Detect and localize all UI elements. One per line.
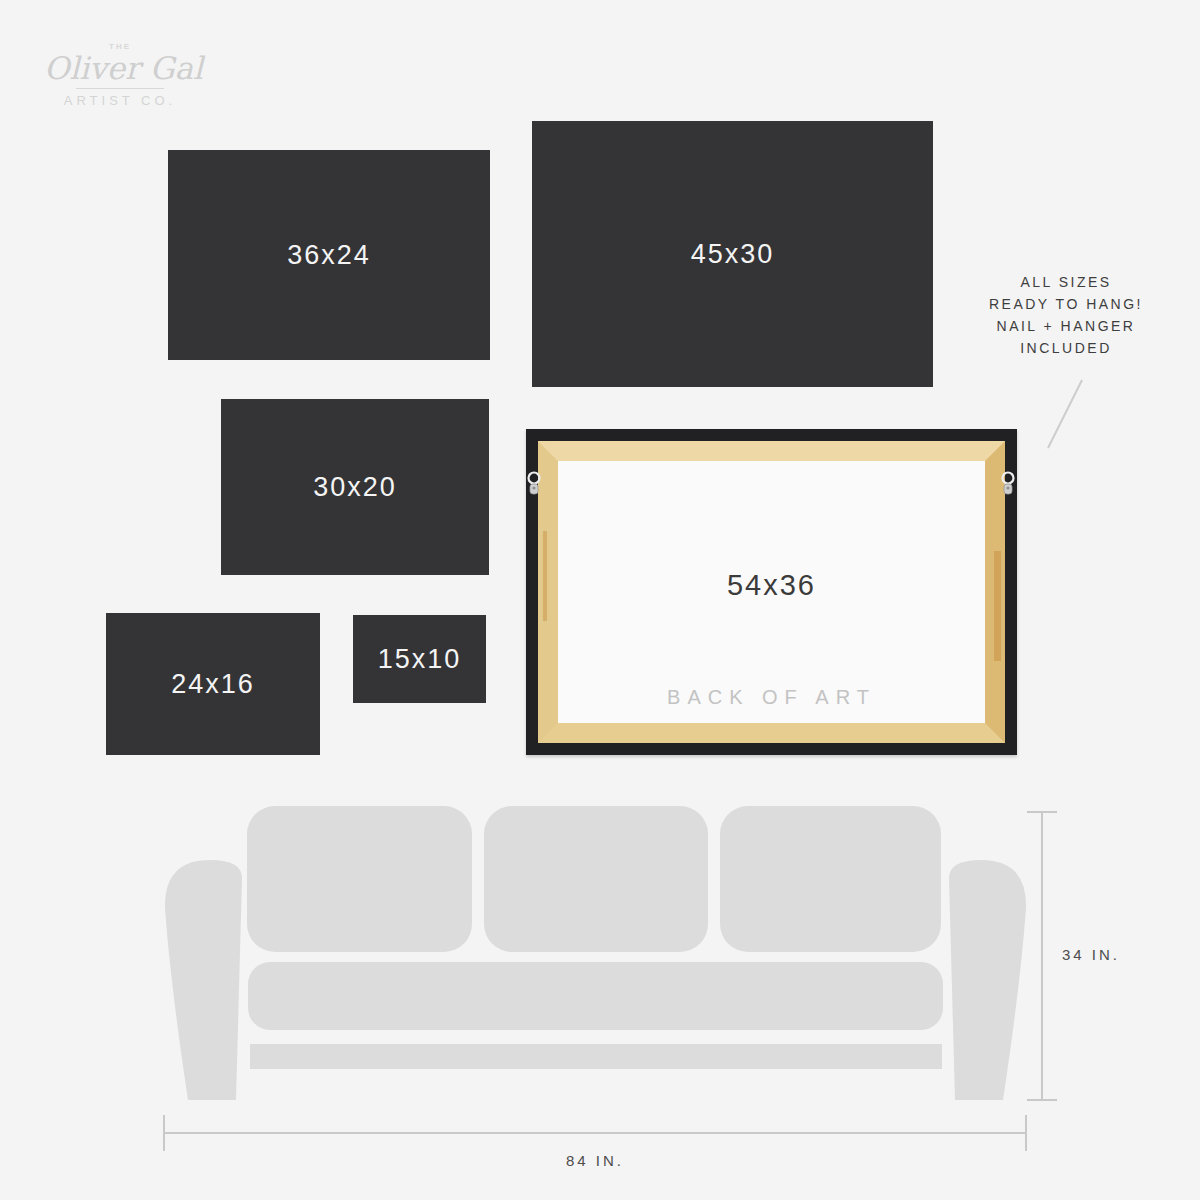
sofa-right-armrest — [949, 860, 1026, 1100]
back-of-art-frame: 54x36 BACK OF ART — [526, 429, 1017, 755]
ready-to-hang-note: ALL SIZES READY TO HANG! NAIL + HANGER I… — [958, 271, 1174, 359]
wood-stretcher-bars: 54x36 BACK OF ART — [538, 441, 1005, 743]
size-label-45x30: 45x30 — [691, 239, 775, 270]
size-label-15x10: 15x10 — [378, 644, 462, 675]
sofa-silhouette — [165, 806, 1026, 1100]
note-line-2: READY TO HANG! — [958, 293, 1174, 315]
sofa-width-label: 84 IN. — [163, 1152, 1027, 1169]
brand-suffix: ARTIST CO. — [44, 93, 196, 108]
width-dimension-line — [163, 1132, 1027, 1134]
size-label-24x16: 24x16 — [171, 669, 255, 700]
size-swatch-45x30: 45x30 — [532, 121, 933, 387]
brand-divider — [76, 88, 164, 89]
size-label-36x24: 36x24 — [287, 240, 371, 271]
width-dimension-cap-left — [163, 1115, 165, 1151]
brand-name: Oliver Gal — [44, 51, 196, 85]
size-swatch-24x16: 24x16 — [106, 613, 320, 755]
frame-size-label: 54x36 — [558, 569, 985, 602]
d-ring-hanger-icon — [526, 469, 542, 503]
sofa-back-cushion — [247, 806, 472, 952]
size-label-30x20: 30x20 — [313, 472, 397, 503]
sofa-back-cushion — [484, 806, 708, 952]
sofa-height-label: 34 IN. — [1062, 946, 1120, 963]
note-line-1: ALL SIZES — [958, 271, 1174, 293]
sofa-seat-cushion — [248, 962, 943, 1030]
sofa-back-cushion — [720, 806, 941, 952]
wood-grain-streak — [994, 551, 1001, 661]
size-swatch-36x24: 36x24 — [168, 150, 490, 360]
height-dimension-cap-top — [1027, 811, 1057, 813]
note-pointer-line — [1048, 380, 1082, 448]
back-of-art-label: BACK OF ART — [558, 686, 985, 709]
brand-logo: THE Oliver Gal ARTIST CO. — [44, 42, 196, 108]
note-line-4: INCLUDED — [958, 337, 1174, 359]
size-swatch-15x10: 15x10 — [353, 615, 486, 703]
sofa-bottom-rail — [250, 1044, 942, 1069]
wood-grain-streak — [543, 531, 547, 621]
height-dimension-line — [1041, 812, 1043, 1100]
height-dimension-cap-bottom — [1027, 1099, 1057, 1101]
d-ring-hanger-icon — [1000, 469, 1016, 503]
size-swatch-30x20: 30x20 — [221, 399, 489, 575]
note-line-3: NAIL + HANGER — [958, 315, 1174, 337]
width-dimension-cap-right — [1025, 1115, 1027, 1151]
sofa-left-armrest — [165, 860, 242, 1100]
size-guide-infographic: THE Oliver Gal ARTIST CO. 36x24 45x30 30… — [0, 0, 1200, 1200]
